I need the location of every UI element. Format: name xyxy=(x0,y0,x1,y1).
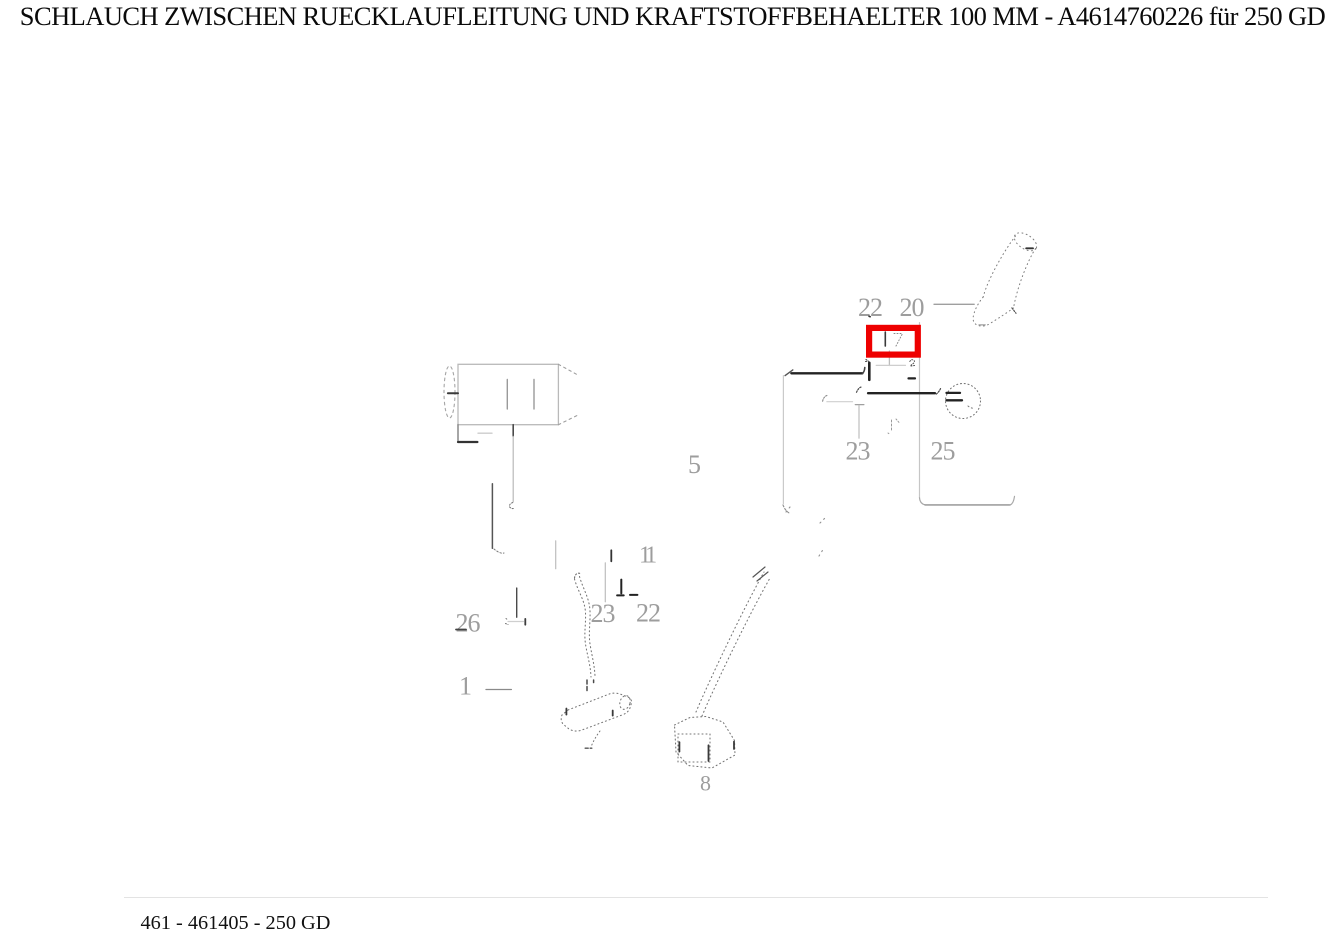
svg-text:11: 11 xyxy=(639,543,656,569)
svg-text:22: 22 xyxy=(636,598,660,627)
svg-text:20: 20 xyxy=(900,293,925,322)
svg-text:8: 8 xyxy=(700,770,711,795)
svg-text:22: 22 xyxy=(858,293,882,322)
svg-text:25: 25 xyxy=(931,436,955,465)
svg-text:23: 23 xyxy=(591,599,615,628)
svg-text:23: 23 xyxy=(846,436,870,465)
svg-text:26: 26 xyxy=(456,608,481,637)
svg-text:5: 5 xyxy=(688,450,700,479)
svg-text:1: 1 xyxy=(459,672,471,701)
